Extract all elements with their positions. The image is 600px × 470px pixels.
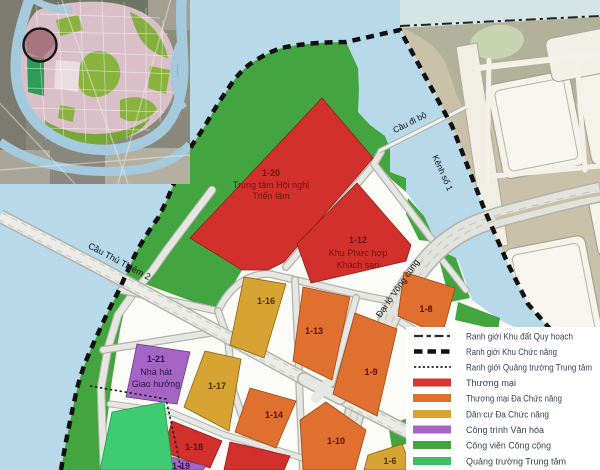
svg-text:Triển lãm: Triển lãm [252, 191, 289, 201]
svg-text:1-18: 1-18 [185, 442, 203, 452]
svg-text:1-14: 1-14 [265, 410, 283, 420]
svg-text:Giao hưởng: Giao hưởng [132, 379, 180, 389]
svg-text:1-17: 1-17 [208, 381, 226, 391]
svg-text:1-16: 1-16 [257, 296, 275, 306]
svg-text:Thương mại: Thương mại [466, 378, 516, 388]
svg-text:Ranh giới Quảng trường Trung t: Ranh giới Quảng trường Trung tâm [466, 363, 592, 373]
svg-text:Quảng trường Trung tâm: Quảng trường Trung tâm [466, 457, 566, 467]
svg-text:Ranh giới Khu đất Quy hoạch: Ranh giới Khu đất Quy hoạch [466, 332, 573, 342]
svg-text:1-21: 1-21 [147, 354, 165, 364]
svg-text:1-10: 1-10 [327, 436, 345, 446]
svg-text:1-13: 1-13 [305, 326, 323, 336]
svg-text:Nhà hát: Nhà hát [140, 367, 172, 377]
svg-text:Ranh giới Khu Chức năng: Ranh giới Khu Chức năng [466, 347, 557, 357]
svg-text:1-9: 1-9 [364, 367, 377, 377]
svg-text:Khách sạn: Khách sạn [337, 260, 380, 270]
svg-text:Trung tâm Hội nghị: Trung tâm Hội nghị [233, 180, 309, 190]
svg-text:1-8: 1-8 [419, 304, 432, 314]
svg-text:1-20: 1-20 [262, 168, 280, 178]
svg-text:1-12: 1-12 [349, 235, 367, 245]
svg-text:Thương mại Đa Chức năng: Thương mại Đa Chức năng [466, 394, 562, 404]
svg-text:1-19: 1-19 [172, 461, 190, 470]
svg-text:1-6: 1-6 [383, 456, 396, 466]
svg-text:Công trình Văn hóa: Công trình Văn hóa [466, 425, 544, 435]
svg-text:Dân cư Đa Chức năng: Dân cư Đa Chức năng [466, 410, 549, 420]
svg-text:Công viên Công cộng: Công viên Công cộng [466, 441, 551, 451]
svg-text:Khu Phức hợp: Khu Phức hợp [329, 248, 387, 258]
